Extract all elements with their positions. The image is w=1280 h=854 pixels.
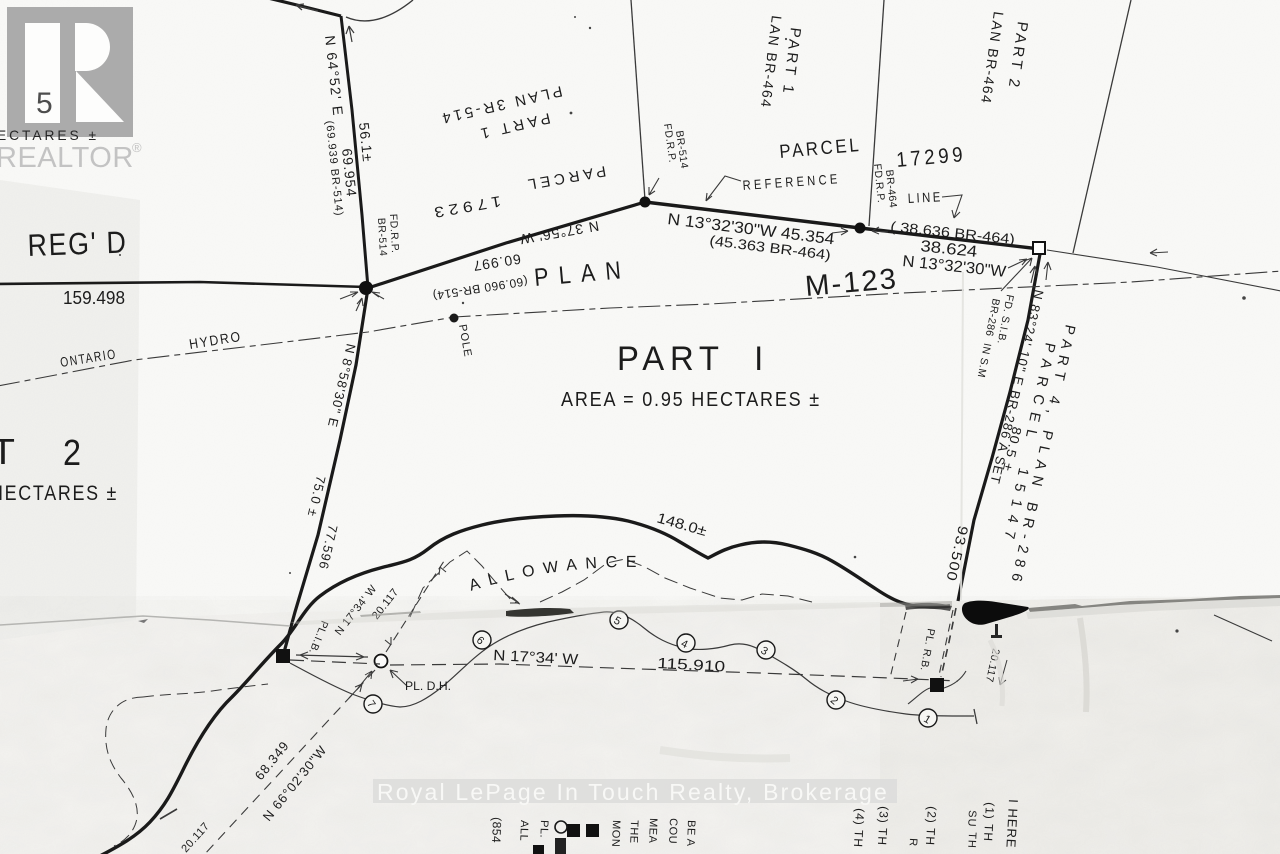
svg-text:PART I: PART I [617, 340, 769, 378]
svg-text:AREA = 0.95 HECTARES ±: AREA = 0.95 HECTARES ± [561, 389, 821, 411]
svg-text:BE A: BE A [684, 820, 697, 847]
svg-text:REALTOR: REALTOR [0, 142, 134, 174]
svg-text:COU: COU [666, 818, 679, 844]
svg-text:159.498: 159.498 [63, 287, 125, 308]
svg-text:MEA: MEA [646, 818, 659, 844]
svg-text:PL.: PL. [537, 820, 550, 842]
svg-text:THE: THE [627, 820, 640, 844]
svg-text:BR-514: BR-514 [375, 218, 389, 257]
svg-text:PART: PART [0, 431, 15, 472]
svg-text:5: 5 [36, 87, 53, 120]
svg-text:(854: (854 [489, 817, 504, 844]
svg-text:(1) TH: (1) TH [981, 802, 997, 842]
svg-text:MON: MON [609, 820, 622, 848]
svg-text:115.910: 115.910 [657, 655, 726, 676]
svg-text:SU: SU [965, 810, 978, 828]
svg-text:PL. D.H.: PL. D.H. [405, 679, 451, 693]
svg-text:(4) TH: (4) TH [851, 808, 867, 848]
svg-text:HECTARES ±: HECTARES ± [0, 482, 118, 505]
svg-text:ALL: ALL [517, 820, 530, 841]
svg-text:I HERE: I HERE [1003, 799, 1021, 849]
svg-text:REG' D: REG' D [27, 225, 128, 263]
svg-text:LINE: LINE [907, 189, 943, 206]
svg-text:R: R [907, 838, 919, 848]
svg-text:(2) TH: (2) TH [923, 806, 939, 846]
svg-text:®: ® [132, 140, 142, 155]
svg-text:ECTARES ±: ECTARES ± [0, 127, 99, 143]
svg-text:(3) TH: (3) TH [875, 806, 891, 846]
svg-text:2: 2 [63, 432, 81, 473]
svg-text:Royal LePage In Touch Realty,: Royal LePage In Touch Realty, Brokerage [377, 779, 889, 805]
svg-text:TH: TH [965, 832, 978, 849]
